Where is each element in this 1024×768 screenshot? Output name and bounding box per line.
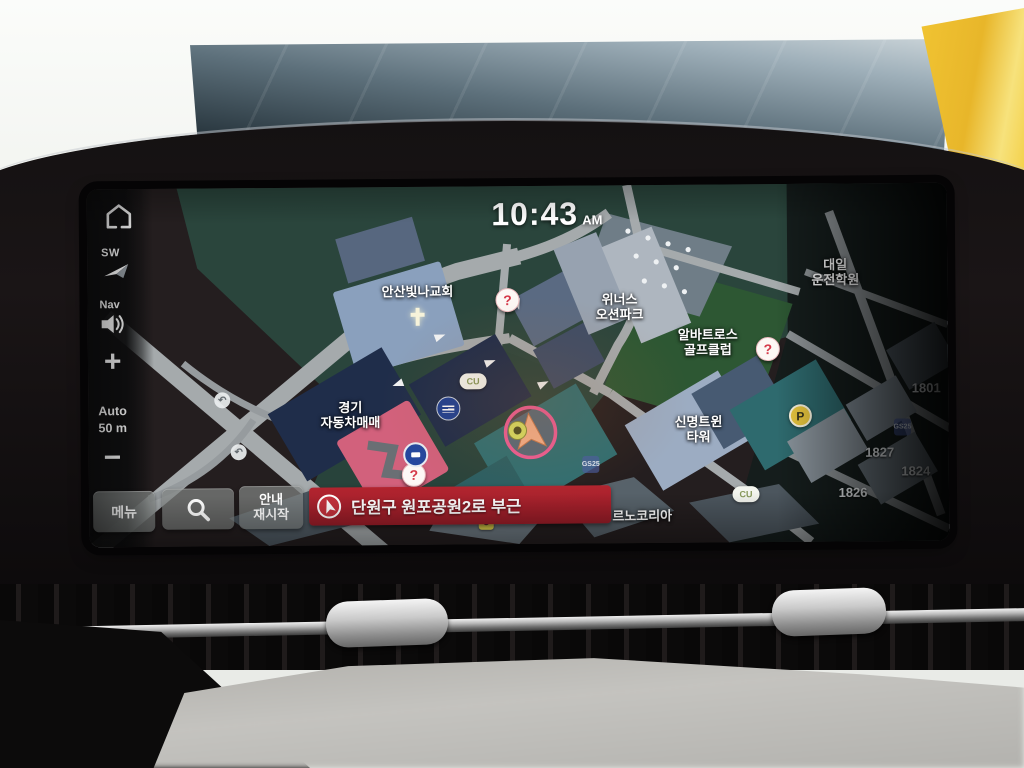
map-number-1827: 1827 — [865, 445, 894, 460]
compass-heading-label: SW — [101, 247, 120, 259]
poi-parking-icon: P — [789, 404, 812, 427]
church-cross-icon — [409, 308, 427, 326]
clock-meridiem: AM — [582, 212, 602, 227]
map-label-church: 안산빛나교회 — [381, 284, 453, 300]
poi-gs25-store: GS25 — [582, 456, 599, 473]
poi-gs25-store: GS25 — [894, 418, 911, 435]
destination-banner[interactable]: 단원구 원포공원2로 부근 — [309, 485, 611, 525]
map-label-albatross: 알바트로스골프클럽 — [678, 327, 738, 358]
poi-cu-store: CU — [460, 373, 487, 389]
clock-time: 10:43 — [491, 196, 578, 233]
map-number-1824: 1824 — [901, 463, 930, 478]
compass-button[interactable]: SW — [101, 247, 131, 283]
poi-fuel-price-marker: ? — [495, 288, 519, 312]
poi-blue-badge — [403, 442, 428, 467]
map-label-sinmyeong: 신명트윈타워 — [674, 414, 722, 445]
nav-volume-button[interactable]: Nav — [99, 299, 127, 335]
poi-cu-store: CU — [732, 486, 759, 502]
poi-blue-circle-icon — [436, 396, 460, 420]
compass-needle-icon — [101, 261, 131, 283]
search-button[interactable] — [162, 488, 234, 530]
map-label-winners: 위너스오션파크 — [596, 292, 644, 323]
map-number-1801: 1801 — [912, 380, 941, 395]
uturn-sign-icon: ↶ — [231, 444, 247, 460]
zoom-out-button[interactable]: − — [104, 441, 122, 475]
clock: 10:43AM — [447, 195, 647, 234]
poi-fuel-price-marker: ? — [756, 337, 780, 361]
uturn-sign-icon: ↶ — [214, 392, 230, 408]
air-vent-adjuster[interactable] — [771, 587, 887, 637]
menu-button[interactable]: 메뉴 — [93, 491, 155, 532]
navigation-arrow-icon — [316, 493, 342, 519]
home-button[interactable] — [103, 202, 135, 237]
map-label-gyeonggi: 경기자동차매매 — [320, 400, 380, 431]
zoom-in-button[interactable]: + — [104, 345, 122, 379]
map-scale-button[interactable]: Auto 50 m — [98, 403, 127, 437]
map-label-daeil: 대일운전학원 — [811, 257, 859, 288]
speaker-icon — [100, 313, 128, 335]
dashboard-photo: 안산빛나교회 위너스오션파크 알바트로스골프클럽 대일운전학원 경기자동차매매 … — [0, 0, 1024, 768]
home-icon — [103, 202, 135, 232]
air-vent-adjuster[interactable] — [325, 598, 449, 648]
map-number-1826: 1826 — [838, 485, 867, 500]
destination-text: 단원구 원포공원2로 부근 — [351, 493, 521, 518]
infotainment-screen[interactable]: 안산빛나교회 위너스오션파크 알바트로스골프클럽 대일운전학원 경기자동차매매 … — [87, 183, 950, 548]
nav-volume-label: Nav — [99, 299, 119, 311]
map-scale-value: 50 m — [98, 420, 127, 437]
map-scale-mode: Auto — [98, 403, 127, 420]
map-label-renault: 르노코리아 — [612, 508, 672, 524]
current-location-marker — [501, 403, 559, 466]
search-icon — [185, 496, 211, 522]
resume-guidance-button[interactable]: 안내 재시작 — [239, 486, 303, 530]
